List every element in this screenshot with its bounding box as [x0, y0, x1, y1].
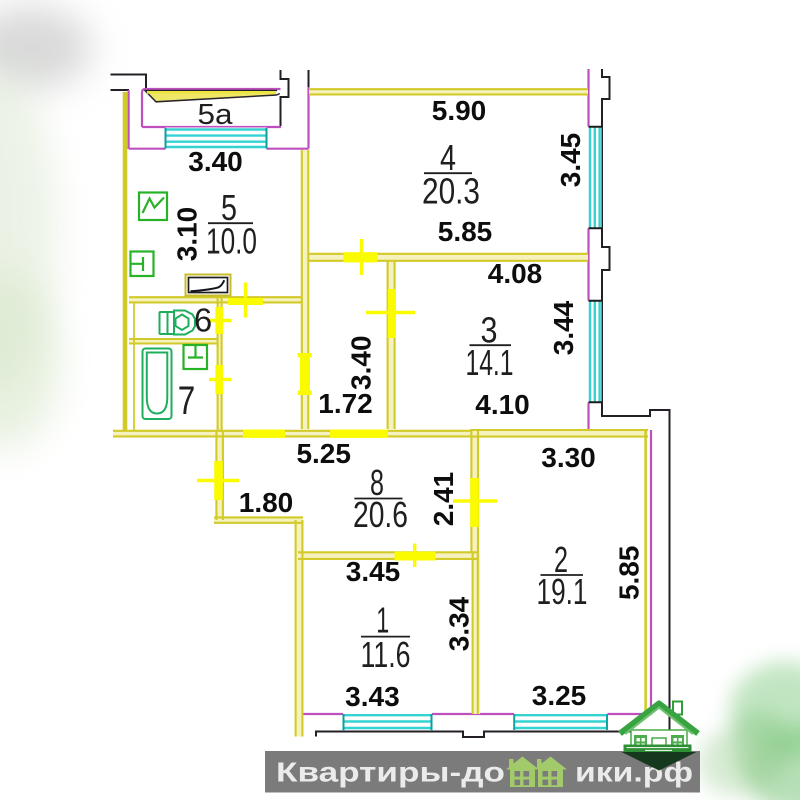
svg-text:5.85: 5.85	[438, 216, 493, 247]
svg-text:19.1: 19.1	[537, 571, 588, 612]
svg-text:3.30: 3.30	[541, 442, 596, 473]
svg-text:10.0: 10.0	[206, 221, 257, 262]
svg-text:6: 6	[194, 302, 212, 339]
svg-text:5.25: 5.25	[296, 438, 351, 469]
svg-text:4.10: 4.10	[475, 389, 530, 420]
svg-text:14.1: 14.1	[466, 342, 514, 383]
svg-text:5.85: 5.85	[614, 546, 645, 601]
svg-text:1.72: 1.72	[318, 388, 373, 419]
svg-text:11.6: 11.6	[361, 634, 411, 675]
svg-text:20.3: 20.3	[422, 171, 480, 212]
svg-text:3.45: 3.45	[555, 133, 586, 188]
svg-text:7: 7	[178, 379, 196, 423]
svg-text:3.44: 3.44	[548, 300, 579, 355]
svg-text:2.41: 2.41	[428, 472, 459, 527]
svg-text:4.08: 4.08	[488, 258, 543, 289]
svg-text:3.10: 3.10	[171, 207, 202, 262]
svg-text:Квартиры-до: Квартиры-до	[276, 757, 505, 788]
svg-text:20.6: 20.6	[353, 494, 408, 535]
svg-text:3.43: 3.43	[345, 681, 400, 712]
svg-text:3.40: 3.40	[188, 146, 243, 177]
svg-text:3.25: 3.25	[532, 680, 587, 711]
svg-text:5a: 5a	[198, 99, 234, 131]
svg-text:5.90: 5.90	[432, 95, 487, 126]
svg-text:3.34: 3.34	[444, 596, 475, 651]
svg-text:3.40: 3.40	[345, 335, 376, 390]
svg-text:1.80: 1.80	[239, 487, 294, 518]
svg-text:3.45: 3.45	[346, 556, 401, 587]
